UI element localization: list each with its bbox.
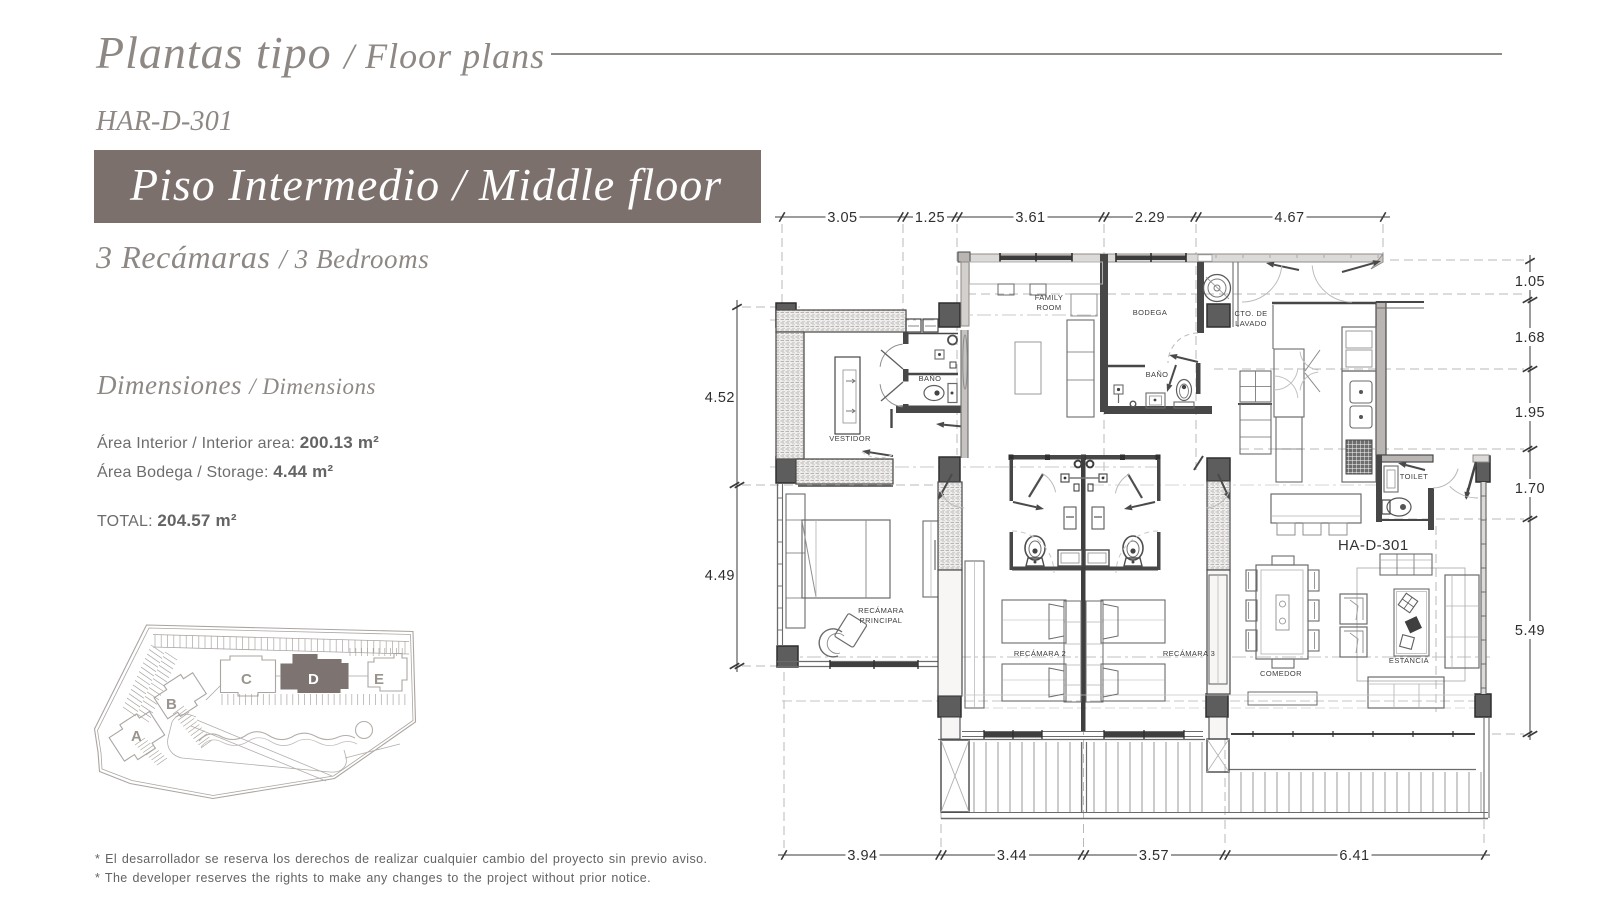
svg-text:6.41: 6.41	[1339, 848, 1369, 864]
svg-text:HA-D-301: HA-D-301	[1338, 537, 1409, 554]
svg-text:1.05: 1.05	[1515, 274, 1545, 290]
svg-text:BODEGA: BODEGA	[1133, 308, 1168, 317]
svg-text:3.61: 3.61	[1015, 210, 1045, 226]
svg-text:CTO. DE: CTO. DE	[1234, 309, 1267, 318]
svg-text:RECÁMARA 2: RECÁMARA 2	[1014, 649, 1066, 658]
svg-text:3.44: 3.44	[997, 848, 1027, 864]
svg-text:4.49: 4.49	[705, 568, 735, 584]
svg-text:PRINCIPAL: PRINCIPAL	[860, 616, 903, 625]
svg-text:5.49: 5.49	[1515, 623, 1545, 639]
svg-text:BAÑO: BAÑO	[919, 374, 942, 383]
svg-text:LAVADO: LAVADO	[1235, 319, 1267, 328]
svg-text:RECÁMARA: RECÁMARA	[858, 606, 904, 615]
svg-text:3.57: 3.57	[1139, 848, 1169, 864]
svg-text:1.68: 1.68	[1515, 330, 1545, 346]
svg-text:BAÑO: BAÑO	[1146, 370, 1169, 379]
svg-text:2.29: 2.29	[1135, 210, 1165, 226]
svg-text:RECÁMARA 3: RECÁMARA 3	[1163, 649, 1215, 658]
svg-text:FAMILY: FAMILY	[1035, 293, 1064, 302]
svg-text:1.70: 1.70	[1515, 481, 1545, 497]
svg-text:4.67: 4.67	[1274, 210, 1304, 226]
svg-text:1.95: 1.95	[1515, 405, 1545, 421]
svg-text:3.05: 3.05	[827, 210, 857, 226]
svg-text:ESTANCIA: ESTANCIA	[1389, 656, 1429, 665]
svg-text:VESTIDOR: VESTIDOR	[829, 434, 871, 443]
svg-text:ROOM: ROOM	[1037, 303, 1062, 312]
svg-text:4.52: 4.52	[705, 390, 735, 406]
svg-text:TOILET: TOILET	[1400, 472, 1429, 481]
svg-text:COMEDOR: COMEDOR	[1260, 669, 1302, 678]
svg-text:3.94: 3.94	[847, 848, 877, 864]
svg-text:1.25: 1.25	[915, 210, 945, 226]
